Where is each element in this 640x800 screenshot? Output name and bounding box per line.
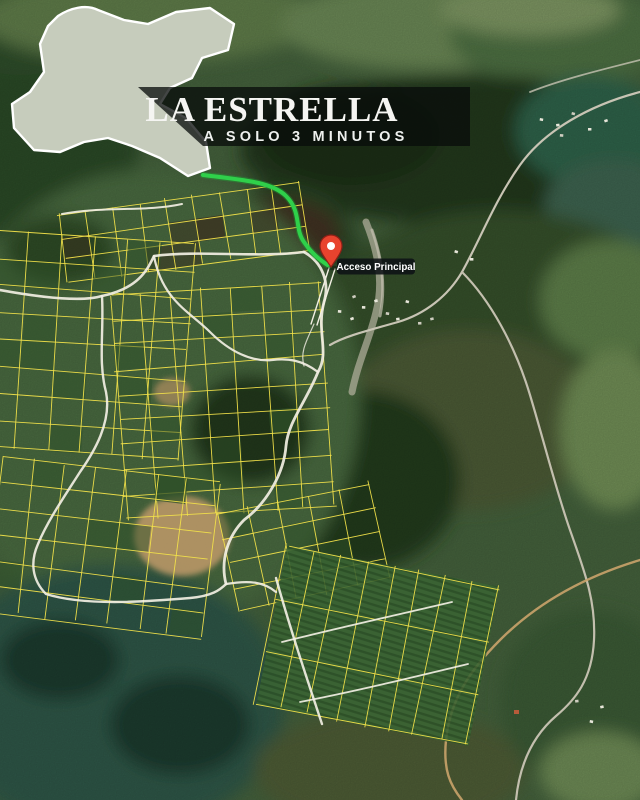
pin-label: Acceso Principal: [337, 262, 416, 273]
banner-title: LA ESTRELLA: [145, 90, 398, 129]
promo-map-image: Acceso Principal LA ESTRELLA A SOLO 3 MI…: [0, 0, 640, 800]
banner-subtitle: A SOLO 3 MINUTOS: [204, 129, 409, 145]
satellite-map: Acceso Principal LA ESTRELLA A SOLO 3 MI…: [0, 0, 640, 800]
